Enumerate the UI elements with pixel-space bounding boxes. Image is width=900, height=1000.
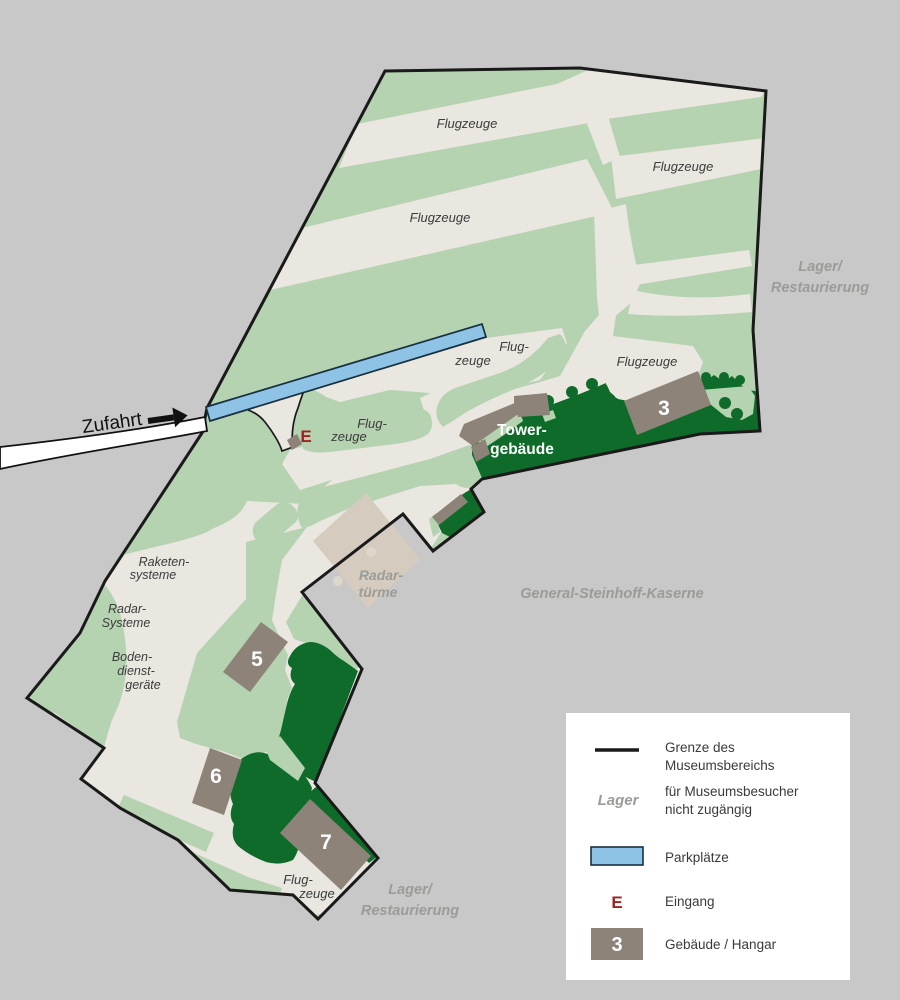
svg-text:Flugzeuge: Flugzeuge (653, 159, 714, 174)
svg-text:Flugzeuge: Flugzeuge (410, 210, 471, 225)
svg-text:Flug-: Flug- (499, 339, 529, 354)
svg-text:Boden-: Boden- (112, 650, 152, 664)
svg-text:Museumsbereichs: Museumsbereichs (665, 758, 775, 773)
svg-text:zeuge: zeuge (330, 429, 366, 444)
svg-text:Radar-: Radar- (359, 567, 404, 583)
svg-text:zeuge: zeuge (454, 353, 490, 368)
svg-text:zeuge: zeuge (298, 886, 334, 901)
svg-text:E: E (611, 893, 622, 912)
svg-text:Restaurierung: Restaurierung (771, 280, 869, 296)
svg-text:Raketen-: Raketen- (139, 555, 190, 569)
svg-text:3: 3 (611, 934, 622, 956)
svg-text:gebäude: gebäude (490, 441, 554, 458)
svg-text:Radar-: Radar- (108, 602, 146, 616)
svg-text:E: E (300, 427, 311, 446)
svg-text:Flugzeuge: Flugzeuge (437, 116, 498, 131)
svg-text:Tower-: Tower- (497, 422, 547, 439)
svg-text:türme: türme (359, 584, 398, 600)
svg-text:nicht zugängig: nicht zugängig (665, 802, 752, 817)
svg-text:5: 5 (251, 648, 263, 671)
svg-text:6: 6 (210, 765, 222, 788)
svg-text:systeme: systeme (130, 568, 177, 582)
svg-text:geräte: geräte (125, 678, 160, 692)
svg-text:General-Steinhoff-Kaserne: General-Steinhoff-Kaserne (520, 586, 703, 602)
svg-text:für Museumsbesucher: für Museumsbesucher (665, 784, 799, 799)
svg-text:Lager: Lager (598, 792, 640, 809)
svg-text:Eingang: Eingang (665, 894, 715, 909)
svg-text:Flugzeuge: Flugzeuge (617, 354, 678, 369)
svg-text:Lager/: Lager/ (798, 259, 843, 275)
svg-text:7: 7 (320, 831, 332, 854)
svg-text:3: 3 (658, 397, 670, 420)
svg-text:Parkplätze: Parkplätze (665, 850, 729, 865)
svg-text:Gebäude / Hangar: Gebäude / Hangar (665, 937, 777, 952)
svg-text:Systeme: Systeme (102, 616, 151, 630)
svg-text:Restaurierung: Restaurierung (361, 903, 459, 919)
svg-text:Flug-: Flug- (283, 872, 313, 887)
svg-text:Grenze des: Grenze des (665, 740, 735, 755)
svg-text:Lager/: Lager/ (388, 882, 433, 898)
svg-text:dienst-: dienst- (117, 664, 155, 678)
